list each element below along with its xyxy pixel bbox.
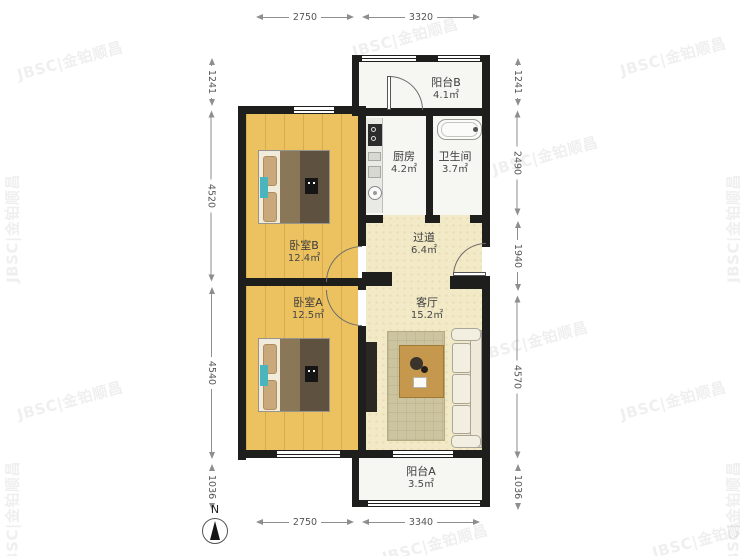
watermark: JBSC|金铂顺昌 <box>607 374 738 428</box>
room-name: 客厅 <box>397 296 457 309</box>
burner-icon <box>371 127 376 132</box>
dimension-left-0: 1241 <box>206 58 218 106</box>
bed-tray <box>305 178 318 194</box>
window-bedroom-a <box>277 450 340 458</box>
label-bathroom: 卫生间 3.7㎡ <box>425 150 485 176</box>
room-name: 卧室B <box>274 239 334 252</box>
wall-east-upper <box>482 108 490 247</box>
room-name: 过道 <box>394 231 454 244</box>
bed-duvet <box>280 151 300 223</box>
sofa-cushion <box>452 374 471 404</box>
door-leaf-kitchen-balcony <box>387 76 391 110</box>
wall-kitchen-south <box>358 215 383 223</box>
tv-cabinet <box>366 342 377 412</box>
bed-bedroom-a <box>258 338 330 412</box>
dimension-right-3: 4570 <box>512 296 524 459</box>
sofa-back <box>470 330 482 448</box>
room-area: 3.7㎡ <box>425 164 485 176</box>
room-name: 阳台B <box>416 76 476 89</box>
label-bedroom-b: 卧室B 12.4㎡ <box>274 239 334 265</box>
watermark: JBSC|金铂顺昌 <box>4 374 135 428</box>
wall-bath-south <box>470 215 490 223</box>
bed-bedroom-b <box>258 150 330 224</box>
label-hallway: 过道 6.4㎡ <box>394 231 454 257</box>
sofa-armrest <box>451 435 481 448</box>
wall-balcony-b-west <box>352 55 359 116</box>
watermark: JBSC|金铂顺昌 <box>2 164 23 294</box>
compass-icon <box>202 518 228 544</box>
dimension-right-2: 1940 <box>512 221 524 291</box>
dimension-bottom-1: 3340 <box>362 516 480 528</box>
dimension-top-0: 2750 <box>256 11 354 23</box>
watermark: JBSC|金铂顺昌 <box>4 34 135 88</box>
room-name: 阳台A <box>391 465 451 478</box>
label-bedroom-a: 卧室A 12.5㎡ <box>278 296 338 322</box>
dimension-left-2: 4540 <box>206 287 218 459</box>
sofa-armrest <box>451 328 481 341</box>
door-leaf-entry <box>453 272 486 276</box>
wall-east-lower <box>482 276 490 460</box>
room-area: 4.1㎡ <box>416 90 476 102</box>
north-label: N <box>202 503 228 516</box>
window-balcony-b <box>438 55 480 62</box>
wall-kitchen-bath-south <box>425 215 440 223</box>
watermark: JBSC|金铂顺昌 <box>479 129 610 183</box>
dimension-top-1: 3320 <box>362 11 480 23</box>
watermark: JBSC|金铂顺昌 <box>723 451 740 556</box>
window-balcony-a <box>368 500 480 507</box>
label-balcony-a: 阳台A 3.5㎡ <box>391 465 451 491</box>
teacup-icon <box>421 366 428 373</box>
watermark: JBSC|金铂顺昌 <box>2 451 23 556</box>
dimension-left-1: 4520 <box>206 111 218 282</box>
wall-bedroom-b-east <box>358 106 366 246</box>
wall-balcony-a-east <box>482 458 490 507</box>
north-arrow-icon <box>210 521 220 540</box>
watermark: JBSC|金铂顺昌 <box>639 512 740 556</box>
dimension-left-3: 1036 <box>206 464 218 506</box>
floor-plan: JBSC|金铂顺昌 JBSC|金铂顺昌 JBSC|金铂顺昌 JBSC|金铂顺昌 … <box>0 0 740 556</box>
magazine-icon <box>413 377 427 388</box>
bed-duvet <box>280 339 300 411</box>
room-area: 3.5㎡ <box>391 479 451 491</box>
label-balcony-b: 阳台B 4.1㎡ <box>416 76 476 102</box>
wall-balcony-b-east <box>482 55 490 116</box>
dimension-right-0: 1241 <box>512 58 524 106</box>
dimension-right-1: 2490 <box>512 111 524 216</box>
wall-hall-stub <box>362 272 392 286</box>
wall-bedroom-a-east <box>358 326 366 452</box>
faucet-icon <box>473 127 478 132</box>
room-area: 15.2㎡ <box>397 310 457 322</box>
bed-runner <box>260 365 268 386</box>
room-name: 卧室A <box>278 296 338 309</box>
room-area: 12.4㎡ <box>274 253 334 265</box>
room-name: 卫生间 <box>425 150 485 163</box>
window-balcony-b <box>362 55 416 62</box>
wall-entry-stub <box>450 276 490 289</box>
balcony-a-sliding-door <box>393 450 453 458</box>
sofa-cushion <box>452 343 471 373</box>
room-area: 6.4㎡ <box>394 245 454 257</box>
bed-runner <box>260 177 268 198</box>
label-living-room: 客厅 15.2㎡ <box>397 296 457 322</box>
watermark: JBSC|金铂顺昌 <box>723 164 740 294</box>
burner-icon <box>371 136 376 141</box>
sofa-cushion <box>452 405 471 434</box>
dimension-bottom-0: 2750 <box>256 516 354 528</box>
room-area: 12.5㎡ <box>278 310 338 322</box>
bed-tray <box>305 366 318 382</box>
window-bedroom-b <box>294 106 334 114</box>
sink-drain-icon <box>373 191 377 195</box>
watermark: JBSC|金铂顺昌 <box>607 30 738 84</box>
dimension-right-4: 1036 <box>512 464 524 506</box>
